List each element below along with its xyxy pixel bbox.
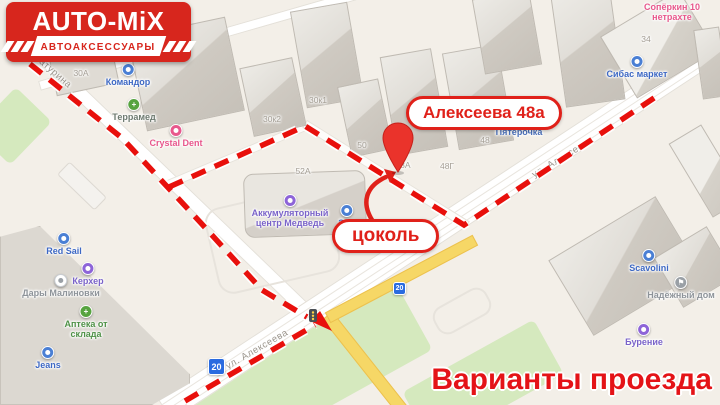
crystal-dent-icon — [169, 124, 182, 137]
scavolini-label: Scavolini — [629, 263, 669, 273]
jeans-icon — [42, 346, 55, 359]
poi-jeans[interactable]: Jeans — [35, 346, 61, 370]
poi-crystal-dent[interactable]: Crystal Dent — [149, 124, 202, 148]
terramed-icon: + — [128, 98, 141, 111]
address-callout: Алексеева 48а — [406, 96, 562, 130]
poi-nadezhny-dom[interactable]: ⚑Надёжный дом — [647, 276, 715, 300]
burenie-icon — [638, 323, 651, 336]
poi-scavolini[interactable]: Scavolini — [629, 249, 669, 273]
poi-dary-malinovki[interactable]: Дары Малиновки — [22, 274, 99, 298]
logo-subtitle-box: АВТОАКСЕССУАРЫ — [31, 36, 166, 56]
jeans-label: Jeans — [35, 360, 61, 370]
entrance-arrow — [366, 177, 386, 223]
pink-store-label: Сопёркин 10нетрахте — [644, 2, 700, 22]
entrance-callout: цоколь — [332, 219, 439, 253]
poi-sibas-market[interactable]: Сибас маркет — [607, 55, 668, 79]
apteka-ot-sklada-icon: + — [79, 305, 92, 318]
akkum-center-label: Аккумуляторныйцентр Медведь — [252, 208, 329, 228]
map-screenshot: ул. Батуринаул. Алексееваул. Алексеева 3… — [0, 0, 720, 405]
burenie-label: Бурение — [625, 337, 663, 347]
poi-red-sail[interactable]: Red Sail — [46, 232, 82, 256]
red-sail-label: Red Sail — [46, 246, 82, 256]
komandor-label: Командор — [106, 77, 151, 87]
poi-burenie[interactable]: Бурение — [625, 323, 663, 347]
road-badge-20: 20 — [393, 282, 406, 295]
apteka-ot-sklada-label: Аптека отсклада — [64, 319, 107, 339]
poi-komandor[interactable]: Командор — [106, 63, 151, 87]
poi-terramed[interactable]: +Террамед — [112, 98, 155, 122]
logo-subtitle: АВТОАКСЕССУАРЫ — [41, 42, 156, 53]
auto-center-icon — [341, 204, 354, 217]
auto-mix-logo: AUTO-MiX АВТОАКСЕССУАРЫ — [6, 2, 191, 62]
red-sail-icon — [57, 232, 70, 245]
poi-pink-store[interactable]: Сопёркин 10нетрахте — [644, 1, 700, 22]
scavolini-icon — [642, 249, 655, 262]
poi-apteka-ot-sklada[interactable]: +Аптека отсклада — [64, 305, 107, 339]
logo-subtitle-strip: АВТОАКСЕССУАРЫ — [4, 36, 193, 56]
sibas-market-label: Сибас маркет — [607, 69, 668, 79]
location-pin[interactable] — [383, 123, 413, 172]
route-alekseeva-south — [185, 325, 315, 401]
dary-malinovki-label: Дары Малиновки — [22, 288, 99, 298]
komandor-icon — [122, 63, 135, 76]
caption-text: Варианты проезда — [431, 363, 712, 397]
dary-malinovki-icon — [55, 274, 68, 287]
crystal-dent-label: Crystal Dent — [149, 138, 202, 148]
nadezhny-dom-icon: ⚑ — [674, 276, 687, 289]
poi-akkum-center[interactable]: Аккумуляторныйцентр Медведь — [252, 194, 329, 228]
terramed-label: Террамед — [112, 112, 155, 122]
logo-title: AUTO-MiX — [32, 8, 164, 34]
akkum-center-icon — [283, 194, 296, 207]
sibas-market-icon — [630, 55, 643, 68]
nadezhny-dom-label: Надёжный дом — [647, 290, 715, 300]
road-badge-20: 20 — [208, 358, 225, 375]
